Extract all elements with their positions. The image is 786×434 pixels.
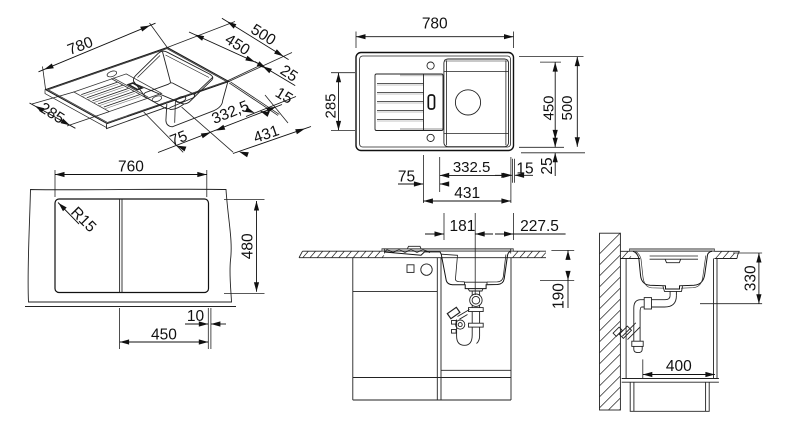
svg-text:450: 450 [541,95,558,120]
svg-text:330: 330 [742,265,759,291]
svg-text:75: 75 [398,169,415,186]
svg-text:10: 10 [187,308,205,325]
svg-text:450: 450 [151,327,177,344]
svg-text:431: 431 [454,185,480,202]
svg-text:15: 15 [516,161,533,178]
svg-text:500: 500 [559,95,576,120]
svg-text:190: 190 [550,283,567,309]
svg-text:181: 181 [449,218,475,235]
svg-text:285: 285 [323,93,340,118]
svg-text:400: 400 [666,358,692,375]
svg-text:760: 760 [118,159,144,176]
svg-text:332.5: 332.5 [453,159,491,176]
svg-text:227.5: 227.5 [520,218,559,235]
svg-text:780: 780 [422,16,448,33]
svg-text:480: 480 [240,233,257,259]
svg-text:25: 25 [539,157,556,174]
